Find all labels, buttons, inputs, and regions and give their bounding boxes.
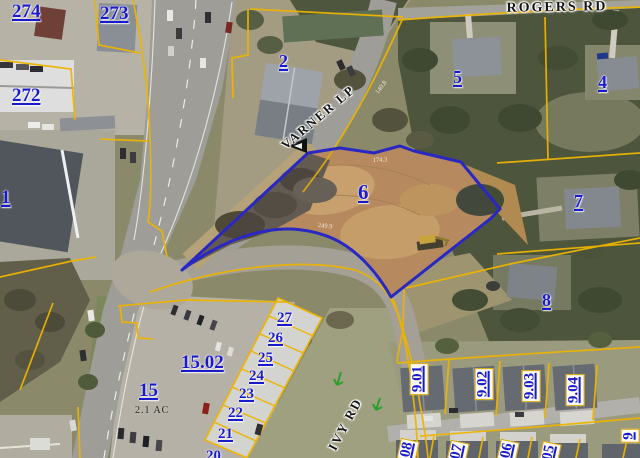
parcel-label-1[interactable]: 1 bbox=[1, 188, 11, 207]
dimension-label: 174.3 bbox=[373, 157, 388, 164]
parcel-label-27[interactable]: 27 bbox=[277, 311, 292, 326]
parcel-label-07[interactable]: 07 bbox=[447, 440, 470, 458]
parcel-label-9-01[interactable]: 9.01 bbox=[410, 363, 429, 395]
parcel-label-20[interactable]: 20 bbox=[206, 449, 221, 458]
acreage-note: 2.1 AC bbox=[135, 406, 169, 416]
parcel-label-8[interactable]: 8 bbox=[542, 291, 551, 309]
parcel-label-7[interactable]: 7 bbox=[574, 192, 583, 210]
building-parcel-7 bbox=[564, 187, 621, 230]
parcel-label-25[interactable]: 25 bbox=[258, 351, 273, 366]
parcel-label-08[interactable]: 08 bbox=[397, 438, 420, 458]
parcel-label-22[interactable]: 22 bbox=[228, 406, 243, 421]
parcel-label-21[interactable]: 21 bbox=[218, 427, 233, 442]
parcel-label-24[interactable]: 24 bbox=[249, 369, 264, 384]
parcel-label-5[interactable]: 5 bbox=[453, 68, 462, 86]
parcel-label-9-04[interactable]: 9.04 bbox=[566, 374, 585, 406]
map-canvas[interactable]: 274 273 272 1 2 5 4 6 7 8 15.02 15 27 26… bbox=[0, 0, 640, 458]
parcel-label-6[interactable]: 6 bbox=[358, 182, 369, 203]
parcel-label-2[interactable]: 2 bbox=[279, 52, 288, 70]
dimension-label: 249.9 bbox=[317, 223, 332, 231]
parcel-label-15-02[interactable]: 15.02 bbox=[181, 353, 224, 372]
parcel-label-06[interactable]: 06 bbox=[497, 439, 520, 458]
road-label-rogers-rd: ROGERS RD bbox=[506, 0, 607, 16]
parcel-label-05[interactable]: 05 bbox=[539, 441, 562, 458]
parcel-label-273[interactable]: 273 bbox=[100, 4, 129, 23]
parcel-label-274[interactable]: 274 bbox=[12, 2, 41, 21]
parcel-label-23[interactable]: 23 bbox=[239, 387, 254, 402]
parcel-label-9-02[interactable]: 9.02 bbox=[475, 368, 494, 400]
parcel-label-9-03[interactable]: 9.03 bbox=[522, 370, 541, 402]
parcel-label-15[interactable]: 15 bbox=[139, 381, 158, 400]
parcel-label-4[interactable]: 4 bbox=[598, 73, 607, 91]
parcel-label-26[interactable]: 26 bbox=[268, 331, 283, 346]
parcel-label-272[interactable]: 272 bbox=[12, 86, 41, 105]
parcel-label-9[interactable]: 9 bbox=[621, 429, 640, 443]
